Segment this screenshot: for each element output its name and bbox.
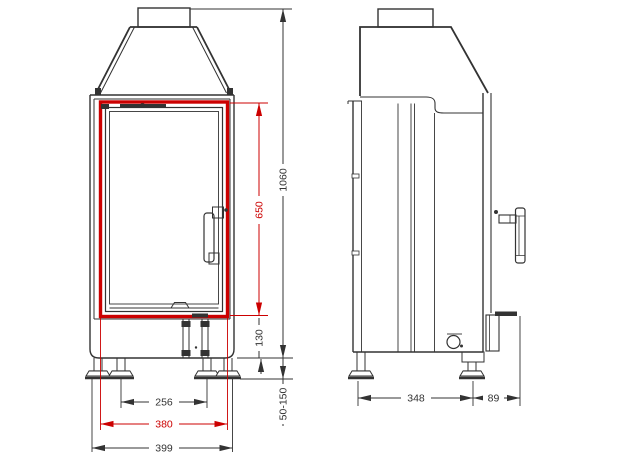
dim-leg-range: 50-150 <box>277 384 290 424</box>
front-body-side-walls <box>90 95 234 349</box>
dim-leg-range-label: 50-150 <box>278 387 290 420</box>
arrow-plinth-height <box>258 359 264 372</box>
front-view <box>85 8 241 378</box>
front-legs <box>85 358 241 378</box>
side-front-lip <box>348 101 362 104</box>
side-view-dimensions: 348 89 <box>358 316 520 406</box>
front-hood-right-cap <box>227 88 233 95</box>
arrow-overall-height-bottom <box>280 345 286 358</box>
door-latch-screw <box>224 208 228 212</box>
air-control-screw <box>460 345 463 348</box>
door-frame <box>106 108 223 312</box>
arrow-door-width-right <box>215 421 228 427</box>
arrow-door-height-bottom <box>256 303 262 316</box>
dim-door-height-label: 650 <box>254 201 266 219</box>
front-extension-lines <box>92 9 293 452</box>
rear-damper-lever <box>495 312 517 317</box>
side-panel-seams <box>398 104 435 353</box>
side-wall-stud-upper <box>352 174 359 178</box>
front-hood-inner-lines <box>101 27 227 93</box>
arrow-depth-right <box>460 395 473 401</box>
side-handle-screw <box>494 210 498 214</box>
arrow-door-width-left <box>101 421 114 427</box>
dim-plinth-height-label: 130 <box>254 329 266 347</box>
side-view <box>348 9 525 378</box>
dim-door-height: 650 <box>253 196 266 224</box>
door-glass <box>110 112 219 305</box>
fireplace-dimension-drawing: 1060 650 130 50-150 256 <box>0 0 624 460</box>
front-hood-outline <box>96 27 231 93</box>
arrow-depth-left <box>358 395 371 401</box>
side-flue-stub <box>378 9 433 27</box>
dim-plinth-height: 130 <box>253 325 266 351</box>
dim-rear-offset-label: 89 <box>488 393 500 405</box>
arrow-feet-spacing-left <box>121 399 134 405</box>
dim-overall-height: 1060 <box>277 164 290 196</box>
front-body-side-walls-inner <box>94 99 230 319</box>
door-bottom-latch-plate <box>171 303 189 309</box>
arrow-door-height-top <box>256 103 262 116</box>
front-flue-stub <box>138 8 190 27</box>
front-hood-left-cap <box>95 88 101 95</box>
dim-feet-spacing-label: 256 <box>155 397 173 409</box>
side-hood-bottom-step <box>360 97 483 113</box>
arrow-overall-width-right <box>220 445 233 451</box>
dim-door-width-label: 380 <box>155 419 173 431</box>
rear-bracket <box>486 315 499 351</box>
arrow-feet-spacing-right <box>194 399 207 405</box>
door-top-hinge-mark <box>101 104 109 109</box>
dim-overall-width-label: 399 <box>155 443 173 455</box>
pedestal-fixings <box>182 321 210 356</box>
side-wall-stud-lower <box>352 251 359 255</box>
front-body-bottom-plate <box>90 349 234 358</box>
side-hood-outline <box>360 27 488 96</box>
front-red-extension-lines <box>101 103 269 430</box>
arrow-overall-width-left <box>92 445 105 451</box>
air-control-knob <box>447 336 460 349</box>
door-opening-highlight <box>101 102 228 317</box>
arrow-overall-height-top <box>280 9 286 22</box>
side-handle-grip-details <box>516 216 526 256</box>
arrow-leg-range <box>280 366 286 379</box>
side-legs <box>348 352 485 378</box>
side-handle-hub <box>499 215 516 223</box>
arrow-rear-offset-right <box>507 395 520 401</box>
dim-overall-height-label: 1060 <box>278 168 290 192</box>
dim-depth-label: 348 <box>407 393 425 405</box>
door-vent-knob <box>140 103 145 108</box>
door-bottom-latch-bar <box>192 314 208 318</box>
technical-drawing-canvas: 1060 650 130 50-150 256 <box>0 0 624 460</box>
front-view-dimensions: 1060 650 130 50-150 256 <box>92 9 293 455</box>
